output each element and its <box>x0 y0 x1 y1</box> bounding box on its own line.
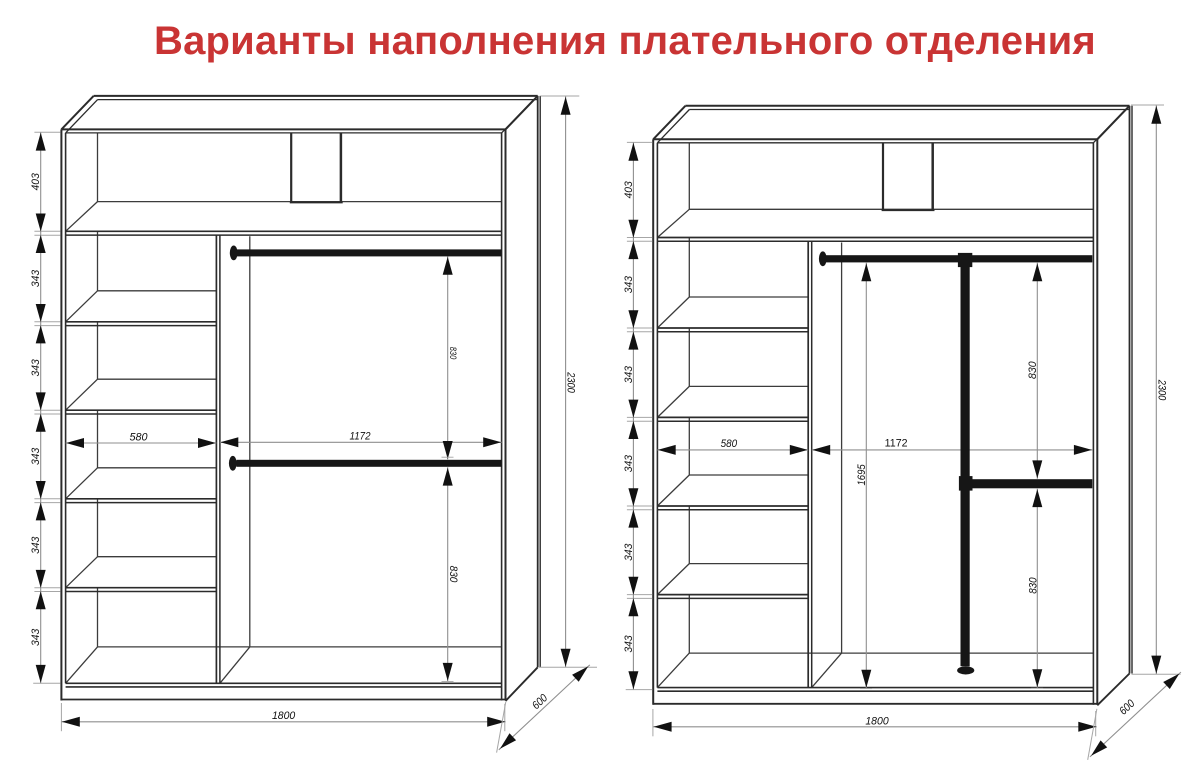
svg-text:2300: 2300 <box>565 371 577 393</box>
svg-text:343: 343 <box>623 543 635 561</box>
svg-text:830: 830 <box>447 347 458 360</box>
svg-text:343: 343 <box>30 269 42 287</box>
svg-text:343: 343 <box>623 635 635 653</box>
svg-text:343: 343 <box>30 628 42 646</box>
svg-text:580: 580 <box>130 431 149 443</box>
svg-text:600: 600 <box>530 692 551 712</box>
svg-text:2300: 2300 <box>1155 379 1167 401</box>
svg-text:403: 403 <box>623 181 635 199</box>
svg-text:1800: 1800 <box>272 710 296 722</box>
svg-text:1172: 1172 <box>885 437 908 449</box>
svg-text:1695: 1695 <box>856 464 868 486</box>
svg-text:1172: 1172 <box>350 430 372 442</box>
svg-text:830: 830 <box>447 566 459 583</box>
svg-text:1800: 1800 <box>865 715 889 727</box>
svg-text:343: 343 <box>30 447 42 465</box>
svg-text:403: 403 <box>30 172 42 190</box>
svg-text:580: 580 <box>721 438 738 450</box>
svg-text:343: 343 <box>30 359 42 377</box>
svg-text:343: 343 <box>623 454 635 472</box>
svg-text:830: 830 <box>1028 577 1040 594</box>
svg-text:343: 343 <box>623 365 635 383</box>
svg-text:343: 343 <box>30 536 42 554</box>
svg-text:830: 830 <box>1027 361 1039 379</box>
svg-text:343: 343 <box>623 275 635 293</box>
